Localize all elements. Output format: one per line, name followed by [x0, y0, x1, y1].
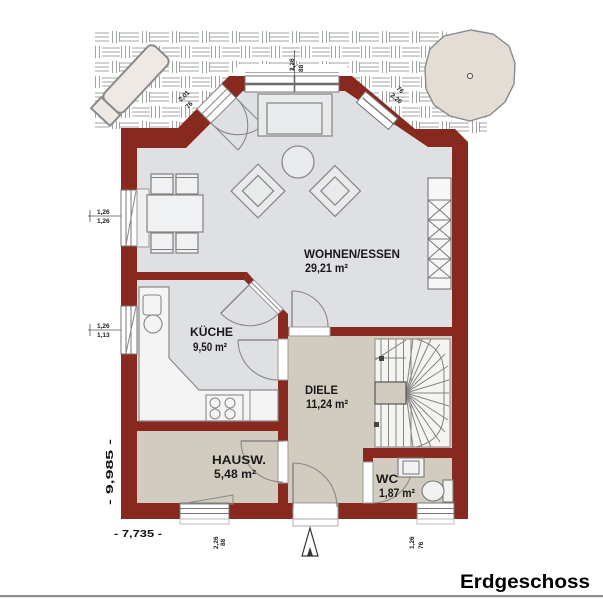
svg-text:2,26: 2,26 [213, 536, 220, 549]
svg-text:1,26: 1,26 [97, 323, 110, 330]
svg-text:29,21 m²: 29,21 m² [305, 261, 348, 275]
svg-text:- 7,735 -: - 7,735 - [114, 529, 162, 540]
svg-text:Erdgeschoss: Erdgeschoss [460, 572, 590, 593]
svg-text:WC: WC [376, 472, 398, 486]
svg-text:1,26: 1,26 [97, 209, 110, 216]
svg-text:1,26: 1,26 [409, 536, 416, 549]
svg-text:WOHNEN/ESSEN: WOHNEN/ESSEN [304, 247, 400, 261]
svg-text:76: 76 [418, 541, 425, 549]
svg-text:5,48 m²: 5,48 m² [214, 467, 256, 481]
svg-text:9,50 m²: 9,50 m² [193, 340, 227, 354]
svg-text:KÜCHE: KÜCHE [190, 324, 233, 339]
svg-text:1,87 m²: 1,87 m² [379, 486, 415, 500]
svg-text:2,26: 2,26 [289, 58, 296, 71]
svg-text:1,13: 1,13 [97, 332, 110, 339]
svg-text:DIELE: DIELE [305, 383, 338, 397]
svg-text:1,26: 1,26 [97, 218, 110, 225]
svg-text:88: 88 [298, 64, 305, 72]
svg-text:- 9,985 -: - 9,985 - [105, 439, 116, 505]
svg-text:11,24 m²: 11,24 m² [306, 397, 348, 411]
svg-text:88: 88 [220, 538, 227, 546]
svg-text:HAUSW.: HAUSW. [212, 453, 266, 467]
